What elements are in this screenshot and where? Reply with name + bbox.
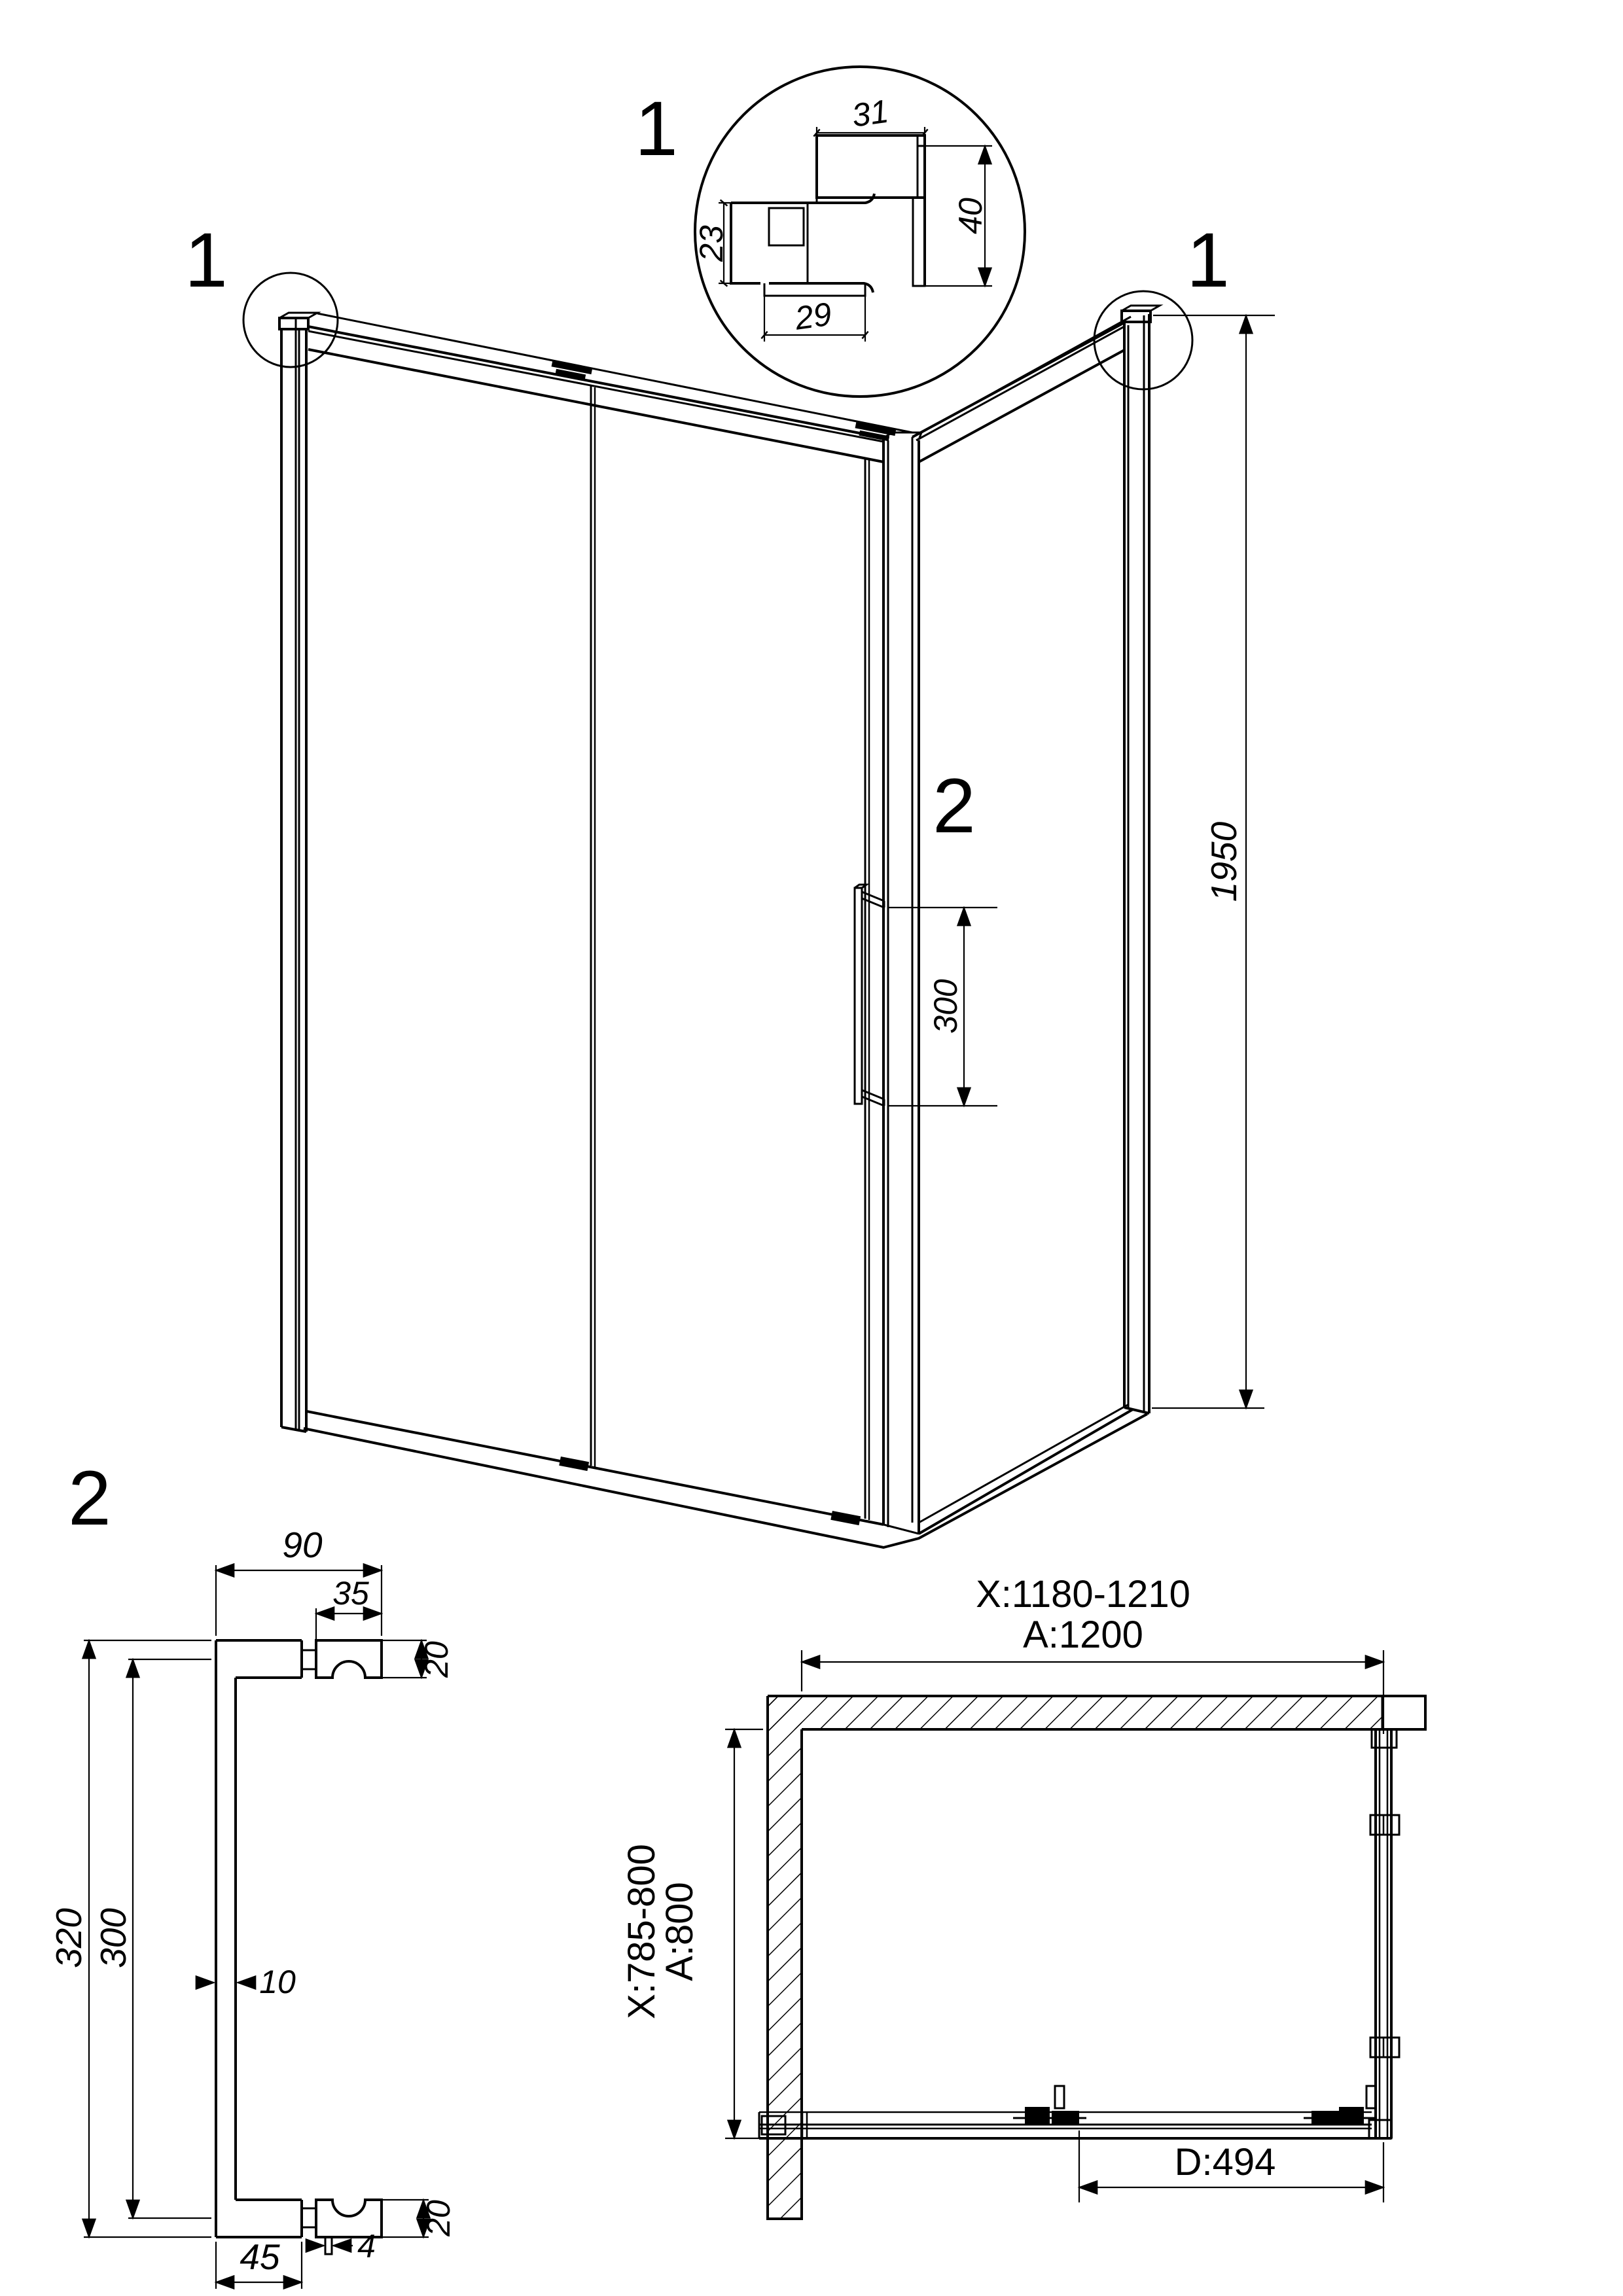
dim-20-bottom: 20 [420,2200,457,2237]
dim-x-depth: X:785-800 [620,1844,663,2019]
dim-a-width: A:1200 [1023,1614,1143,1656]
left-wall-profile [279,313,317,1432]
plan-dimensions: X:1180-1210 A:1200 X:785-800 A:800 D:494 [620,1573,1383,2202]
dim-29: 29 [792,296,834,337]
detail-1-section: 1 31 40 23 [635,67,1025,397]
dim-1950: 1950 [1204,821,1244,902]
right-wall-profile [1122,306,1160,1413]
profile-section-geometry [731,135,925,296]
dim-35: 35 [332,1575,369,1612]
side-top-rail [912,317,1131,462]
iso-handle-dim: 300 [889,908,997,1106]
glass-edges [591,386,869,1520]
dim-10: 10 [259,1964,296,2000]
dim-45: 45 [240,2236,280,2277]
door-rollers [550,360,897,1525]
walls [768,1696,1425,2219]
handle-detail-title: 2 [68,1455,111,1542]
dim-300-handle: 300 [93,1908,134,1968]
iso-view: 1 [185,217,1275,1547]
corner-post [883,433,921,1534]
dim-20-top: 20 [418,1641,455,1678]
dim-90: 90 [282,1525,323,1565]
dim-4: 4 [357,2228,376,2265]
detail-1-dimensions: 31 40 23 29 [693,93,992,342]
door-track-plan [759,2086,1391,2138]
dim-d-opening: D:494 [1175,2141,1276,2183]
dim-x-width: X:1180-1210 [976,1573,1190,1616]
detail-1-title: 1 [635,86,678,172]
dim-31: 31 [849,93,891,134]
callout-label-left: 1 [185,217,228,304]
callout-label-right: 1 [1186,217,1230,304]
iso-height-dim: 1950 [1152,315,1275,1408]
dim-a-depth: A:800 [658,1882,701,1981]
technical-drawing-page: 1 31 40 23 [0,0,1623,2296]
plan-view: X:1180-1210 A:1200 X:785-800 A:800 D:494 [620,1573,1425,2219]
handle-callout-label: 2 [933,763,976,849]
bottom-rails [304,1404,1147,1547]
handle-detail: 2 90 35 20 320 3 [48,1455,457,2289]
dim-40: 40 [952,198,989,234]
dim-23: 23 [693,225,730,262]
handle-geometry [216,1640,382,2254]
dim-300-iso: 300 [927,979,964,1034]
shower-enclosure-drawing: 1 31 40 23 [0,0,1623,2296]
side-panel-plan [1370,1729,1399,2138]
dim-320: 320 [48,1908,89,1968]
